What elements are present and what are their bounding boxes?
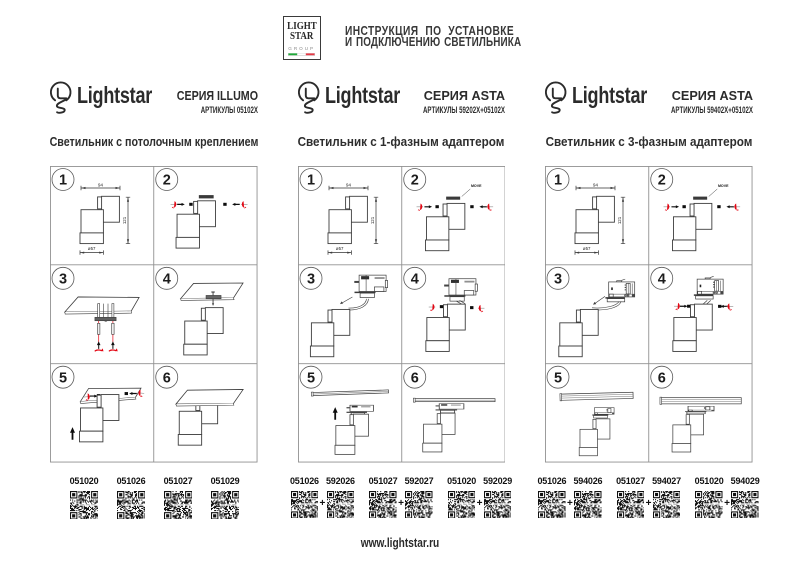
svg-text:6: 6 <box>658 370 666 386</box>
svg-text:ø57: ø57 <box>335 246 343 251</box>
svg-text:2: 2 <box>658 173 666 189</box>
svg-text:ø57: ø57 <box>583 246 591 251</box>
svg-text:6: 6 <box>410 370 418 386</box>
svg-text:121: 121 <box>370 216 375 224</box>
svg-text:5: 5 <box>554 370 562 386</box>
svg-text:MOVE: MOVE <box>718 184 729 188</box>
svg-text:4: 4 <box>410 272 418 288</box>
svg-text:5: 5 <box>59 370 67 386</box>
svg-text:94: 94 <box>593 183 598 188</box>
svg-text:3: 3 <box>59 272 67 288</box>
svg-text:94: 94 <box>346 183 351 188</box>
svg-text:2: 2 <box>410 173 418 189</box>
svg-text:1: 1 <box>59 173 67 189</box>
svg-text:1: 1 <box>554 173 562 189</box>
svg-text:4: 4 <box>163 272 171 288</box>
svg-text:121: 121 <box>617 216 622 224</box>
svg-text:MOVE: MOVE <box>470 184 481 188</box>
svg-text:5: 5 <box>306 370 314 386</box>
svg-text:3: 3 <box>554 272 562 288</box>
svg-text:1: 1 <box>306 173 314 189</box>
svg-text:121: 121 <box>122 216 127 224</box>
svg-text:94: 94 <box>98 183 103 188</box>
svg-text:ø57: ø57 <box>88 246 96 251</box>
svg-text:2: 2 <box>163 173 171 189</box>
svg-text:3: 3 <box>306 272 314 288</box>
svg-text:4: 4 <box>658 272 666 288</box>
svg-text:6: 6 <box>163 370 171 386</box>
